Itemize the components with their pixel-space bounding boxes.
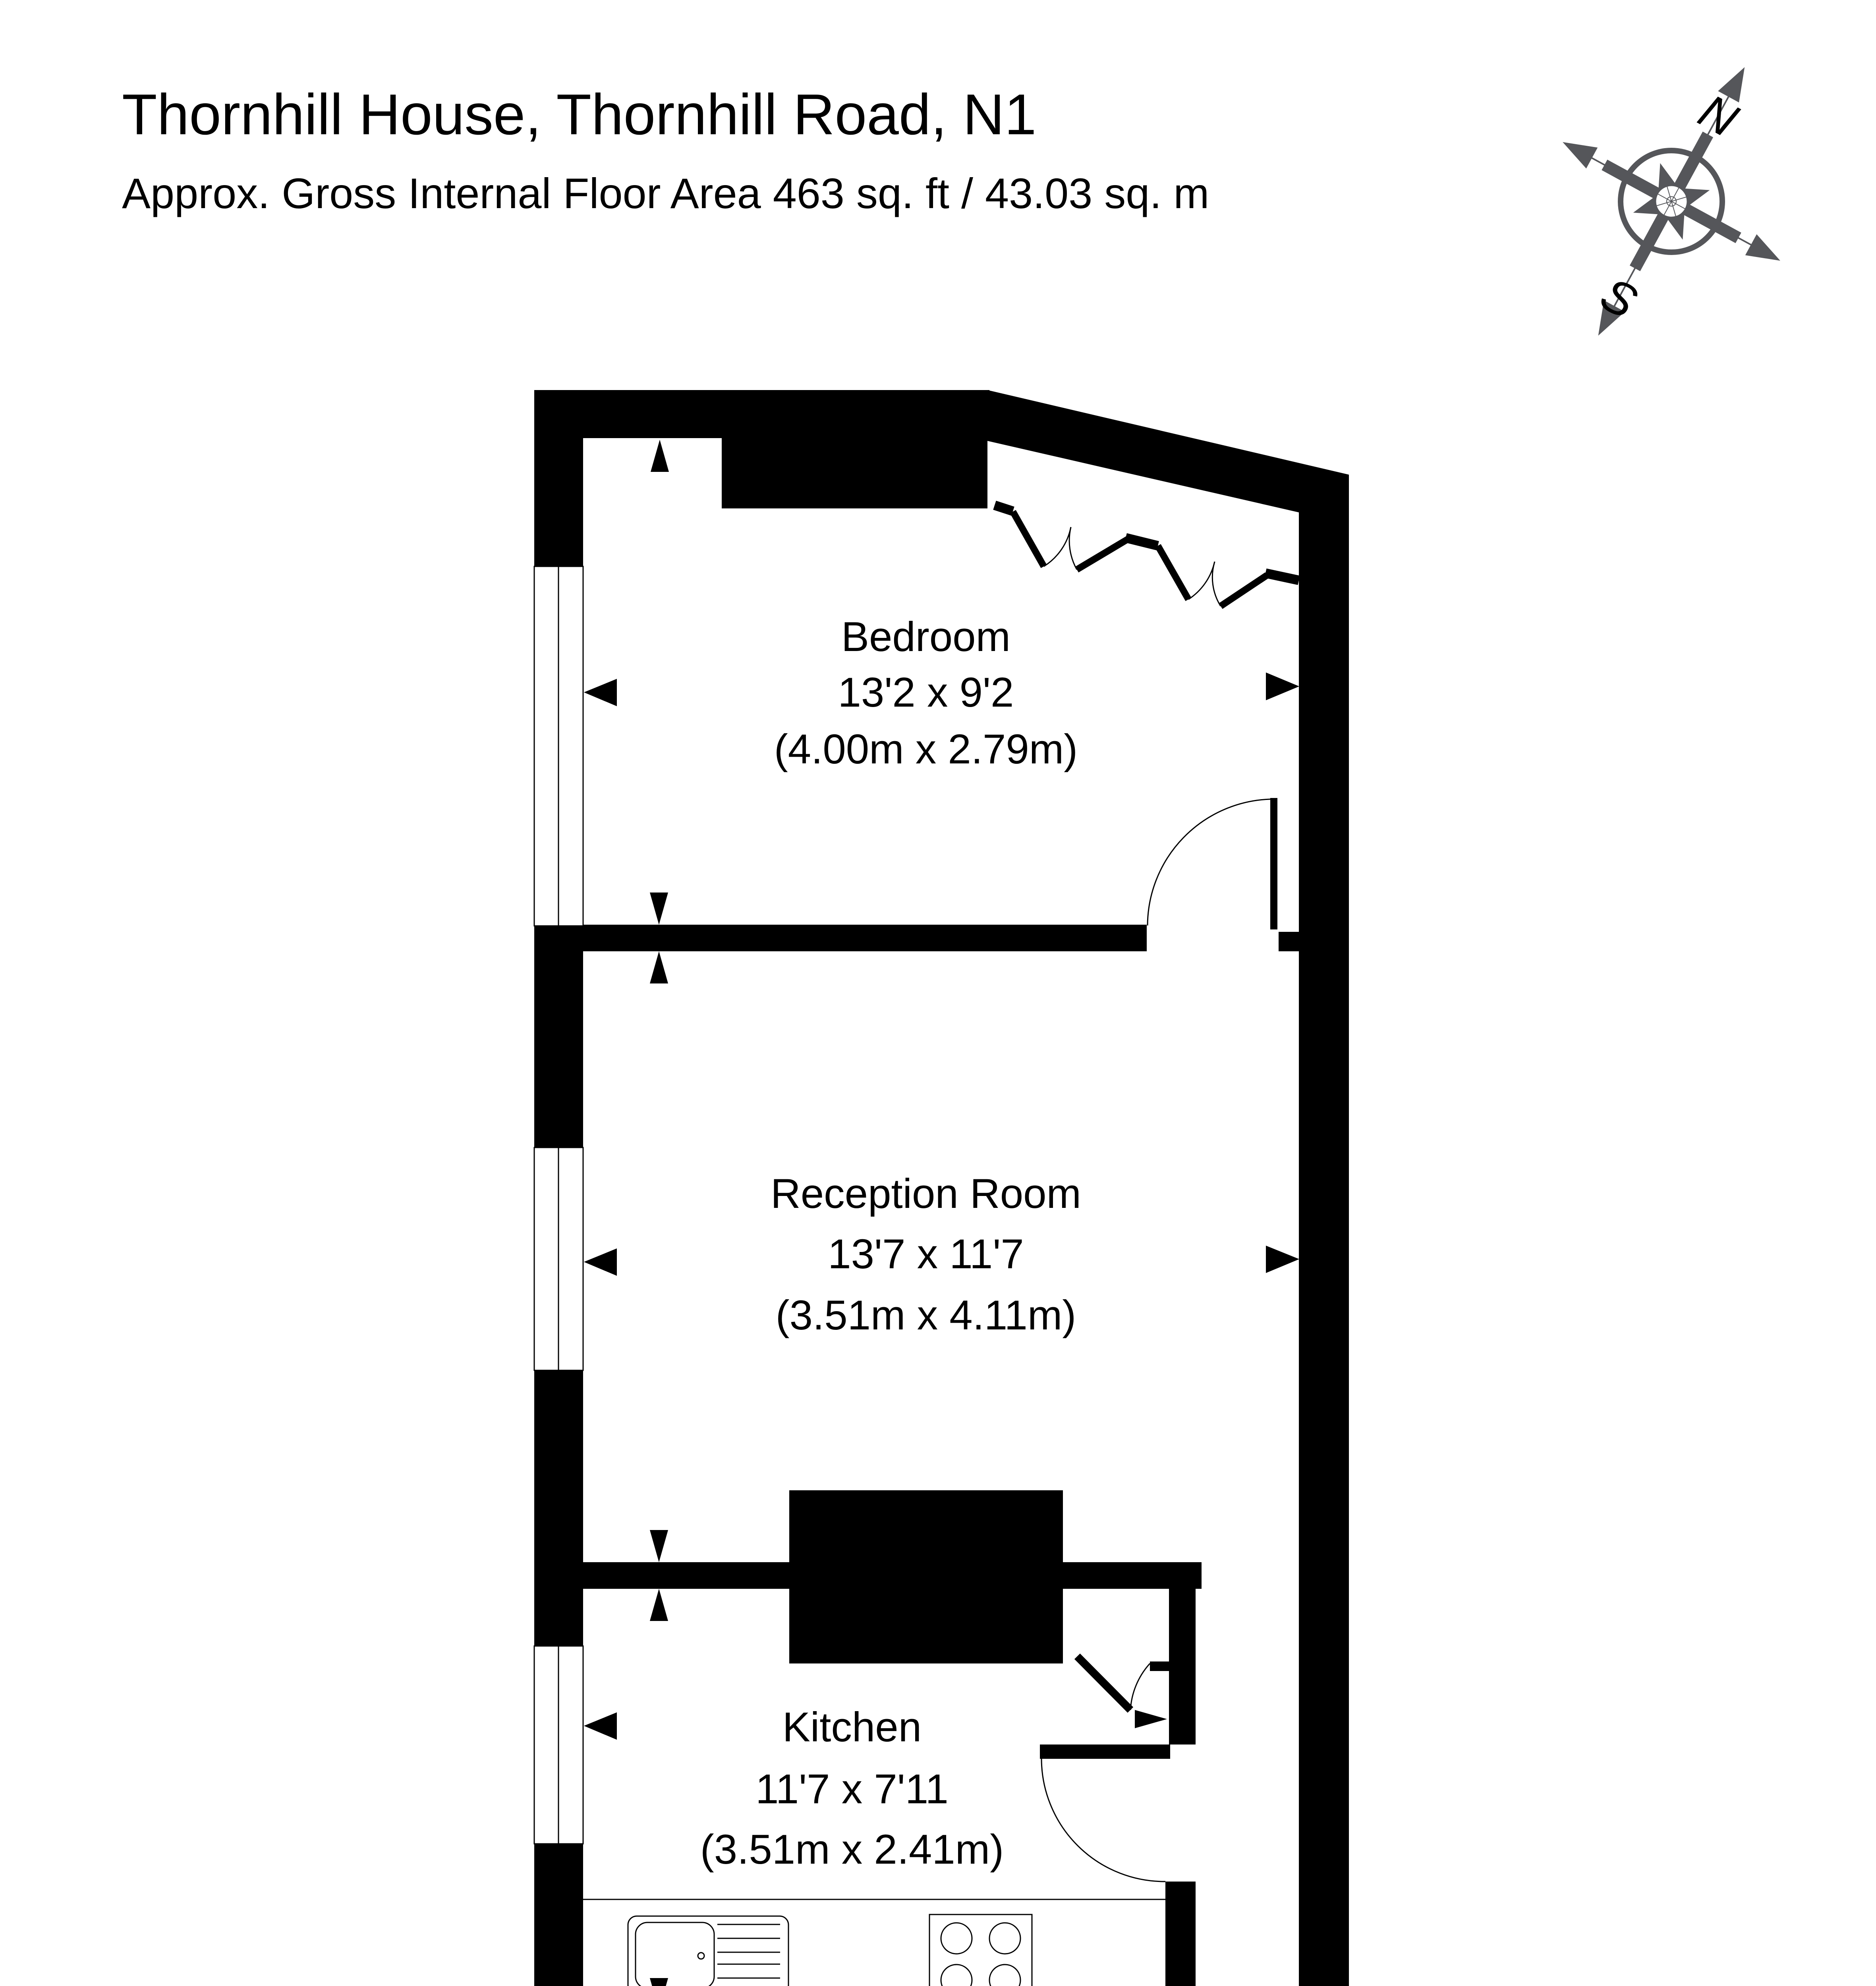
svg-text:Bedroom: Bedroom [841, 614, 1010, 660]
svg-text:11'7 x 7'11: 11'7 x 7'11 [755, 1766, 949, 1812]
svg-text:(4.00m x 2.79m): (4.00m x 2.79m) [774, 726, 1078, 773]
svg-text:Reception Room: Reception Room [771, 1171, 1081, 1217]
svg-text:Approx. Gross Internal Floor A: Approx. Gross Internal Floor Area 463 sq… [122, 169, 1209, 217]
svg-text:13'7 x 11'7: 13'7 x 11'7 [828, 1231, 1024, 1277]
svg-text:Thornhill House, Thornhill Roa: Thornhill House, Thornhill Road, N1 [122, 82, 1036, 147]
svg-text:13'2 x 9'2: 13'2 x 9'2 [838, 669, 1014, 716]
svg-text:Kitchen: Kitchen [782, 1704, 922, 1750]
svg-text:(3.51m x 2.41m): (3.51m x 2.41m) [700, 1826, 1004, 1873]
svg-text:(3.51m x 4.11m): (3.51m x 4.11m) [776, 1292, 1076, 1339]
